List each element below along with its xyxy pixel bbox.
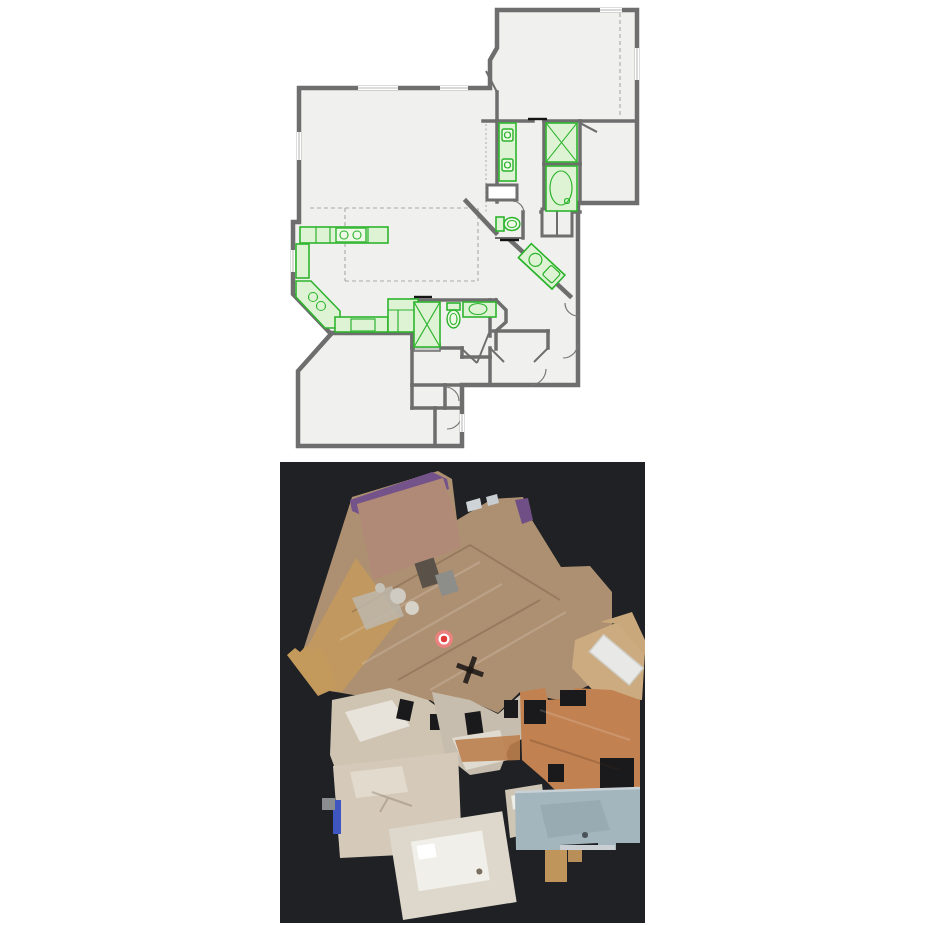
screenshot-canvas	[0, 0, 925, 925]
scan-gray-box	[322, 798, 335, 810]
kitchen-counter-left	[296, 244, 309, 278]
floor-plan	[293, 10, 637, 446]
toilet	[496, 217, 520, 231]
hall-bath-toilet	[447, 303, 460, 328]
bath-cabinet	[487, 185, 517, 200]
scan-bed-room	[389, 811, 517, 920]
scan-view	[280, 462, 645, 923]
scene	[0, 0, 925, 925]
current-camera-position[interactable]	[435, 630, 453, 648]
scan-tan-stub	[545, 850, 567, 882]
